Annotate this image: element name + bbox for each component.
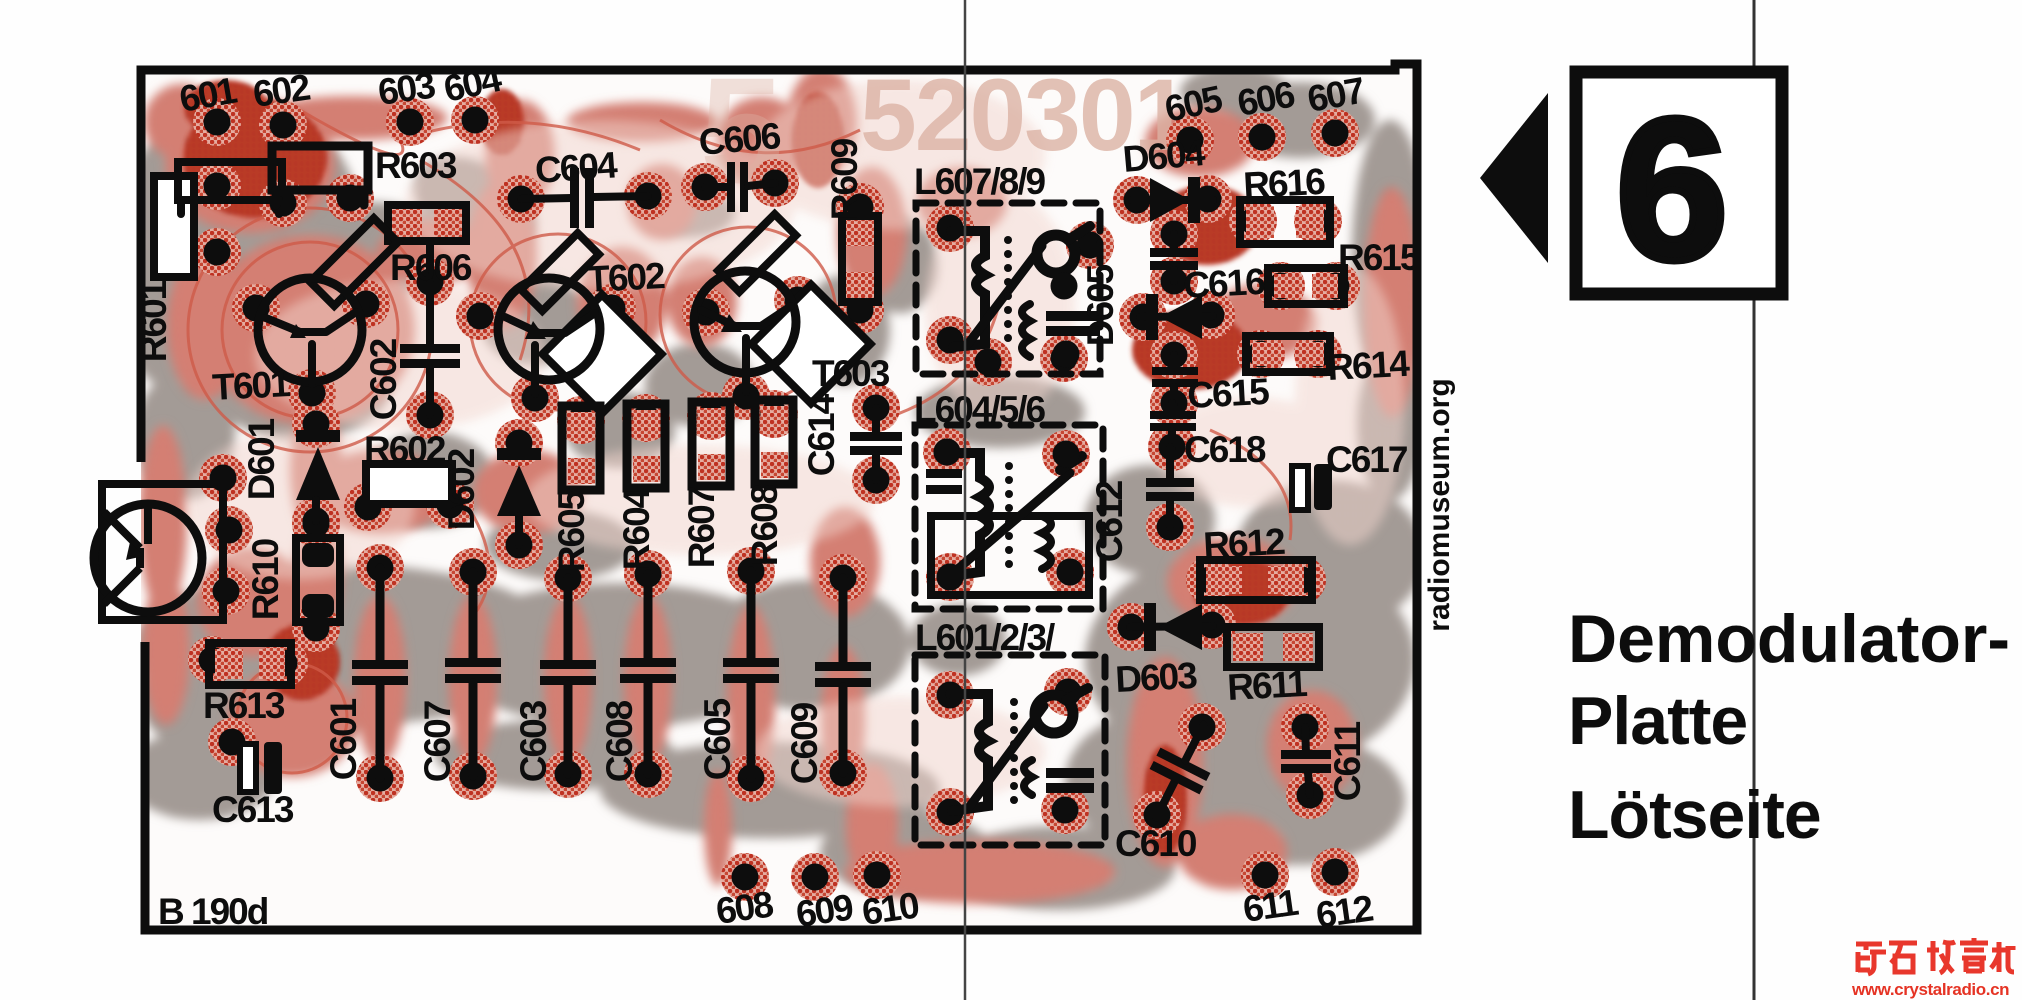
svg-text:C609: C609	[784, 702, 825, 784]
svg-text:C617: C617	[1326, 439, 1407, 480]
svg-text:Lötseite: Lötseite	[1568, 777, 1821, 853]
svg-text:C603: C603	[513, 700, 554, 782]
svg-text:www.crystalradio.cn: www.crystalradio.cn	[1851, 980, 2009, 999]
svg-text:R602: R602	[364, 429, 446, 470]
svg-text:T601: T601	[211, 363, 291, 408]
svg-text:C601: C601	[323, 698, 364, 780]
svg-text:C606: C606	[697, 115, 782, 163]
svg-text:Demodulator-: Demodulator-	[1568, 601, 2010, 677]
svg-text:D605: D605	[1080, 264, 1121, 346]
svg-text:L607/8/9: L607/8/9	[914, 161, 1045, 202]
svg-text:D601: D601	[241, 418, 282, 500]
svg-text:T603: T603	[812, 353, 890, 394]
svg-text:R604: R604	[616, 487, 657, 570]
svg-text:Platte: Platte	[1568, 683, 1747, 759]
svg-text:C613: C613	[212, 789, 294, 830]
svg-text:R603: R603	[375, 145, 457, 186]
svg-text:R614: R614	[1326, 343, 1411, 388]
svg-text:C608: C608	[599, 700, 640, 782]
svg-text:R610: R610	[245, 538, 286, 620]
svg-text:C615: C615	[1186, 371, 1270, 416]
svg-text:R611: R611	[1226, 663, 1308, 708]
svg-text:C602: C602	[363, 338, 404, 420]
svg-text:R607: R607	[681, 487, 722, 568]
svg-text:R615: R615	[1338, 237, 1420, 278]
svg-text:T602: T602	[586, 255, 666, 300]
svg-text:R613: R613	[203, 685, 285, 726]
svg-text:radiomuseum.org: radiomuseum.org	[1423, 378, 1456, 631]
svg-text:R608: R608	[744, 484, 785, 566]
svg-text:611: 611	[1240, 882, 1300, 930]
svg-text:C607: C607	[417, 701, 458, 782]
svg-text:R616: R616	[1242, 161, 1326, 206]
svg-text:C616: C616	[1182, 261, 1266, 306]
svg-text:6: 6	[1616, 76, 1728, 302]
svg-text:R605: R605	[551, 490, 592, 572]
svg-text:C610: C610	[1115, 823, 1197, 864]
svg-text:C614: C614	[801, 393, 842, 476]
svg-text:C605: C605	[697, 698, 738, 780]
svg-text:R609: R609	[824, 138, 865, 220]
svg-text:D603: D603	[1114, 655, 1198, 700]
svg-text:L601/2/3/: L601/2/3/	[915, 617, 1055, 658]
svg-text:C618: C618	[1184, 429, 1266, 470]
svg-text:R606: R606	[390, 247, 472, 288]
svg-text:608: 608	[713, 883, 775, 932]
svg-text:C611: C611	[1327, 721, 1368, 801]
svg-text:L604/5/6: L604/5/6	[914, 389, 1045, 430]
svg-text:R612: R612	[1202, 521, 1286, 566]
svg-text:C612: C612	[1089, 480, 1130, 562]
svg-text:D602: D602	[441, 448, 482, 530]
svg-text:D604: D604	[1121, 132, 1207, 180]
svg-text:C604: C604	[534, 144, 620, 191]
